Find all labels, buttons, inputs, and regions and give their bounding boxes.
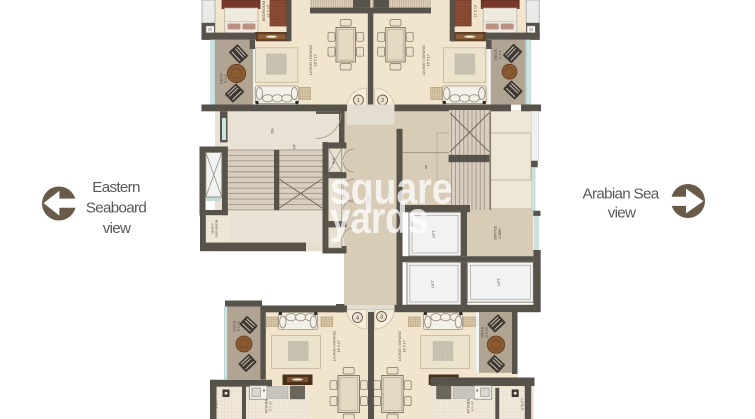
- svg-text:LIFT: LIFT: [432, 230, 436, 238]
- svg-text:DECK: DECK: [493, 49, 498, 60]
- svg-text:LIFT: LIFT: [431, 280, 435, 288]
- svg-text:8' X 10': 8' X 10': [471, 401, 475, 411]
- svg-text:8' X 10': 8' X 10': [269, 401, 273, 411]
- svg-text:16' X 17': 16' X 17': [403, 340, 407, 353]
- svg-text:16' X 17': 16' X 17': [313, 54, 317, 67]
- svg-text:DECK: DECK: [232, 320, 237, 331]
- svg-text:12' X 10': 12' X 10': [267, 4, 271, 17]
- svg-text:UP: UP: [293, 143, 297, 149]
- svg-text:BEDROOM: BEDROOM: [468, 1, 473, 22]
- svg-text:8' X 4': 8' X 4': [499, 50, 503, 59]
- svg-text:LIVING / DINING: LIVING / DINING: [397, 331, 402, 361]
- svg-text:3: 3: [380, 315, 383, 321]
- svg-text:DN: DN: [271, 128, 275, 134]
- svg-text:LIFT: LIFT: [497, 278, 501, 286]
- svg-text:PHC: PHC: [332, 156, 336, 164]
- svg-text:LOBBY: LOBBY: [498, 227, 502, 239]
- svg-text:4' X 7': 4' X 7': [215, 400, 219, 409]
- svg-text:BATHROOM: BATHROOM: [215, 219, 219, 237]
- svg-text:DECK: DECK: [219, 73, 224, 84]
- svg-text:1: 1: [357, 98, 360, 104]
- svg-text:view: view: [608, 205, 636, 222]
- svg-text:yards: yards: [330, 194, 428, 243]
- svg-text:LIVING / DINING: LIVING / DINING: [421, 45, 426, 75]
- svg-text:4' X 7': 4' X 7': [524, 400, 528, 409]
- svg-text:DECK: DECK: [480, 326, 485, 337]
- svg-text:2: 2: [381, 98, 384, 104]
- svg-text:12' X 10': 12' X 10': [473, 4, 477, 17]
- svg-text:Eastern: Eastern: [92, 179, 140, 196]
- svg-text:LIVING / DINING: LIVING / DINING: [332, 331, 337, 361]
- svg-text:view: view: [103, 220, 131, 237]
- svg-text:Seaboard: Seaboard: [86, 200, 147, 217]
- svg-text:LIVING / DINING: LIVING / DINING: [308, 45, 313, 75]
- svg-text:Arabian Sea: Arabian Sea: [583, 186, 660, 203]
- svg-text:BEDROOM: BEDROOM: [261, 1, 266, 22]
- svg-text:8' X 4': 8' X 4': [224, 74, 228, 83]
- svg-text:16' X 17': 16' X 17': [426, 54, 430, 67]
- svg-text:8' X 10': 8' X 10': [485, 326, 489, 337]
- svg-text:16' X 17': 16' X 17': [337, 340, 341, 353]
- svg-text:8' X 10': 8' X 10': [237, 320, 241, 331]
- svg-text:SERVICE: SERVICE: [494, 225, 498, 241]
